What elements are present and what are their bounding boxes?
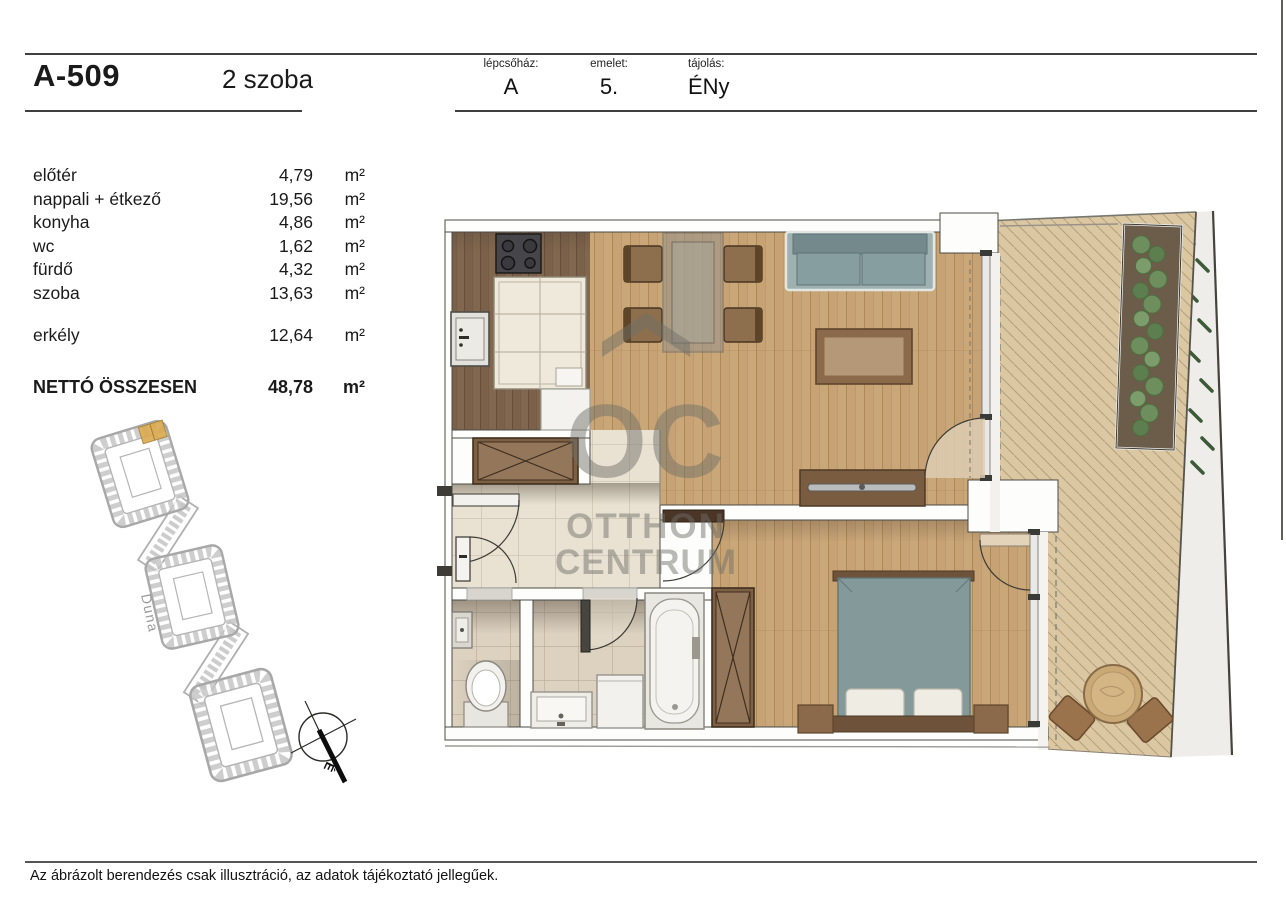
- bath-faucet-icon: [692, 637, 700, 659]
- room-row-total: NETTÓ ÖSSZESEN48,78m²: [33, 375, 365, 399]
- vanity-sink: [531, 692, 592, 728]
- field-orientation-value: ÉNy: [688, 74, 828, 100]
- header-top-rule: [25, 53, 1257, 55]
- watermark-otthon: OTTHON: [566, 507, 726, 546]
- room-row-konyha: konyha4,86m²: [33, 210, 365, 234]
- floorplan-page: { "header": { "unit_id": "A-509", "unit_…: [0, 0, 1286, 910]
- wall-stub: [437, 566, 452, 576]
- bed-frame: [831, 716, 976, 732]
- river-label: Duna: [138, 592, 162, 634]
- footer-rule: [25, 861, 1257, 863]
- bathroom-door-leaf: [581, 600, 590, 652]
- scan-edge-artifact: [1281, 0, 1283, 540]
- field-floor-value: 5.: [554, 74, 664, 100]
- door-handle-icon: [459, 336, 469, 339]
- header-right-rule: [455, 110, 1257, 112]
- bathtub: [645, 593, 704, 729]
- planter-box: [1116, 224, 1182, 450]
- field-orientation: tájolás: ÉNy: [688, 58, 828, 100]
- nightstand: [974, 705, 1008, 733]
- room-row-szoba: szoba13,63m²: [33, 281, 365, 305]
- header-left-rule: [25, 110, 302, 112]
- unit-id: A-509: [33, 58, 120, 94]
- disclaimer-text: Az ábrázolt berendezés csak illusztráció…: [30, 868, 498, 884]
- bed: [831, 571, 976, 732]
- wc-door-threshold: [467, 588, 512, 600]
- washing-machine: [597, 675, 643, 728]
- unit-type: 2 szoba: [222, 64, 313, 95]
- compass-icon: É: [291, 701, 356, 783]
- site-building-3: [188, 667, 294, 784]
- field-floor: emelet: 5.: [554, 58, 664, 100]
- tv-stand: [800, 470, 925, 506]
- field-floor-label: emelet:: [554, 58, 664, 70]
- field-staircase-value: A: [456, 74, 566, 100]
- wall-stub: [437, 486, 452, 496]
- field-staircase-label: lépcsőház:: [456, 58, 566, 70]
- watermark-oc: OC: [566, 384, 726, 500]
- field-orientation-label: tájolás:: [688, 58, 828, 70]
- hall-wardrobe: [473, 438, 578, 484]
- room-row-nappali: nappali + étkező19,56m²: [33, 187, 365, 211]
- floor-plan: OC OTTHON CENTRUM: [435, 200, 1286, 832]
- room-row-eloter: előtér4,79m²: [33, 163, 365, 187]
- toilet: [464, 661, 508, 727]
- nightstand: [798, 705, 833, 733]
- coffee-table: [816, 329, 912, 384]
- room-row-erkely: erkély12,64m²: [33, 323, 365, 347]
- entry-door: [451, 312, 489, 366]
- room-row-furdo: fürdő4,32m²: [33, 257, 365, 281]
- bedroom-wardrobe: [712, 588, 754, 727]
- site-plan: Duna É: [60, 415, 400, 815]
- sofa: [786, 232, 934, 290]
- watermark-centrum: CENTRUM: [555, 543, 737, 582]
- room-row-wc: wc1,62m²: [33, 234, 365, 258]
- hall-door-leaf: [453, 494, 519, 506]
- bedroom-balcony-door-leaf: [980, 534, 1030, 546]
- front-door-leaf: [456, 537, 470, 581]
- slab-shadow-line: [445, 746, 1050, 747]
- field-staircase: lépcsőház: A: [456, 58, 566, 100]
